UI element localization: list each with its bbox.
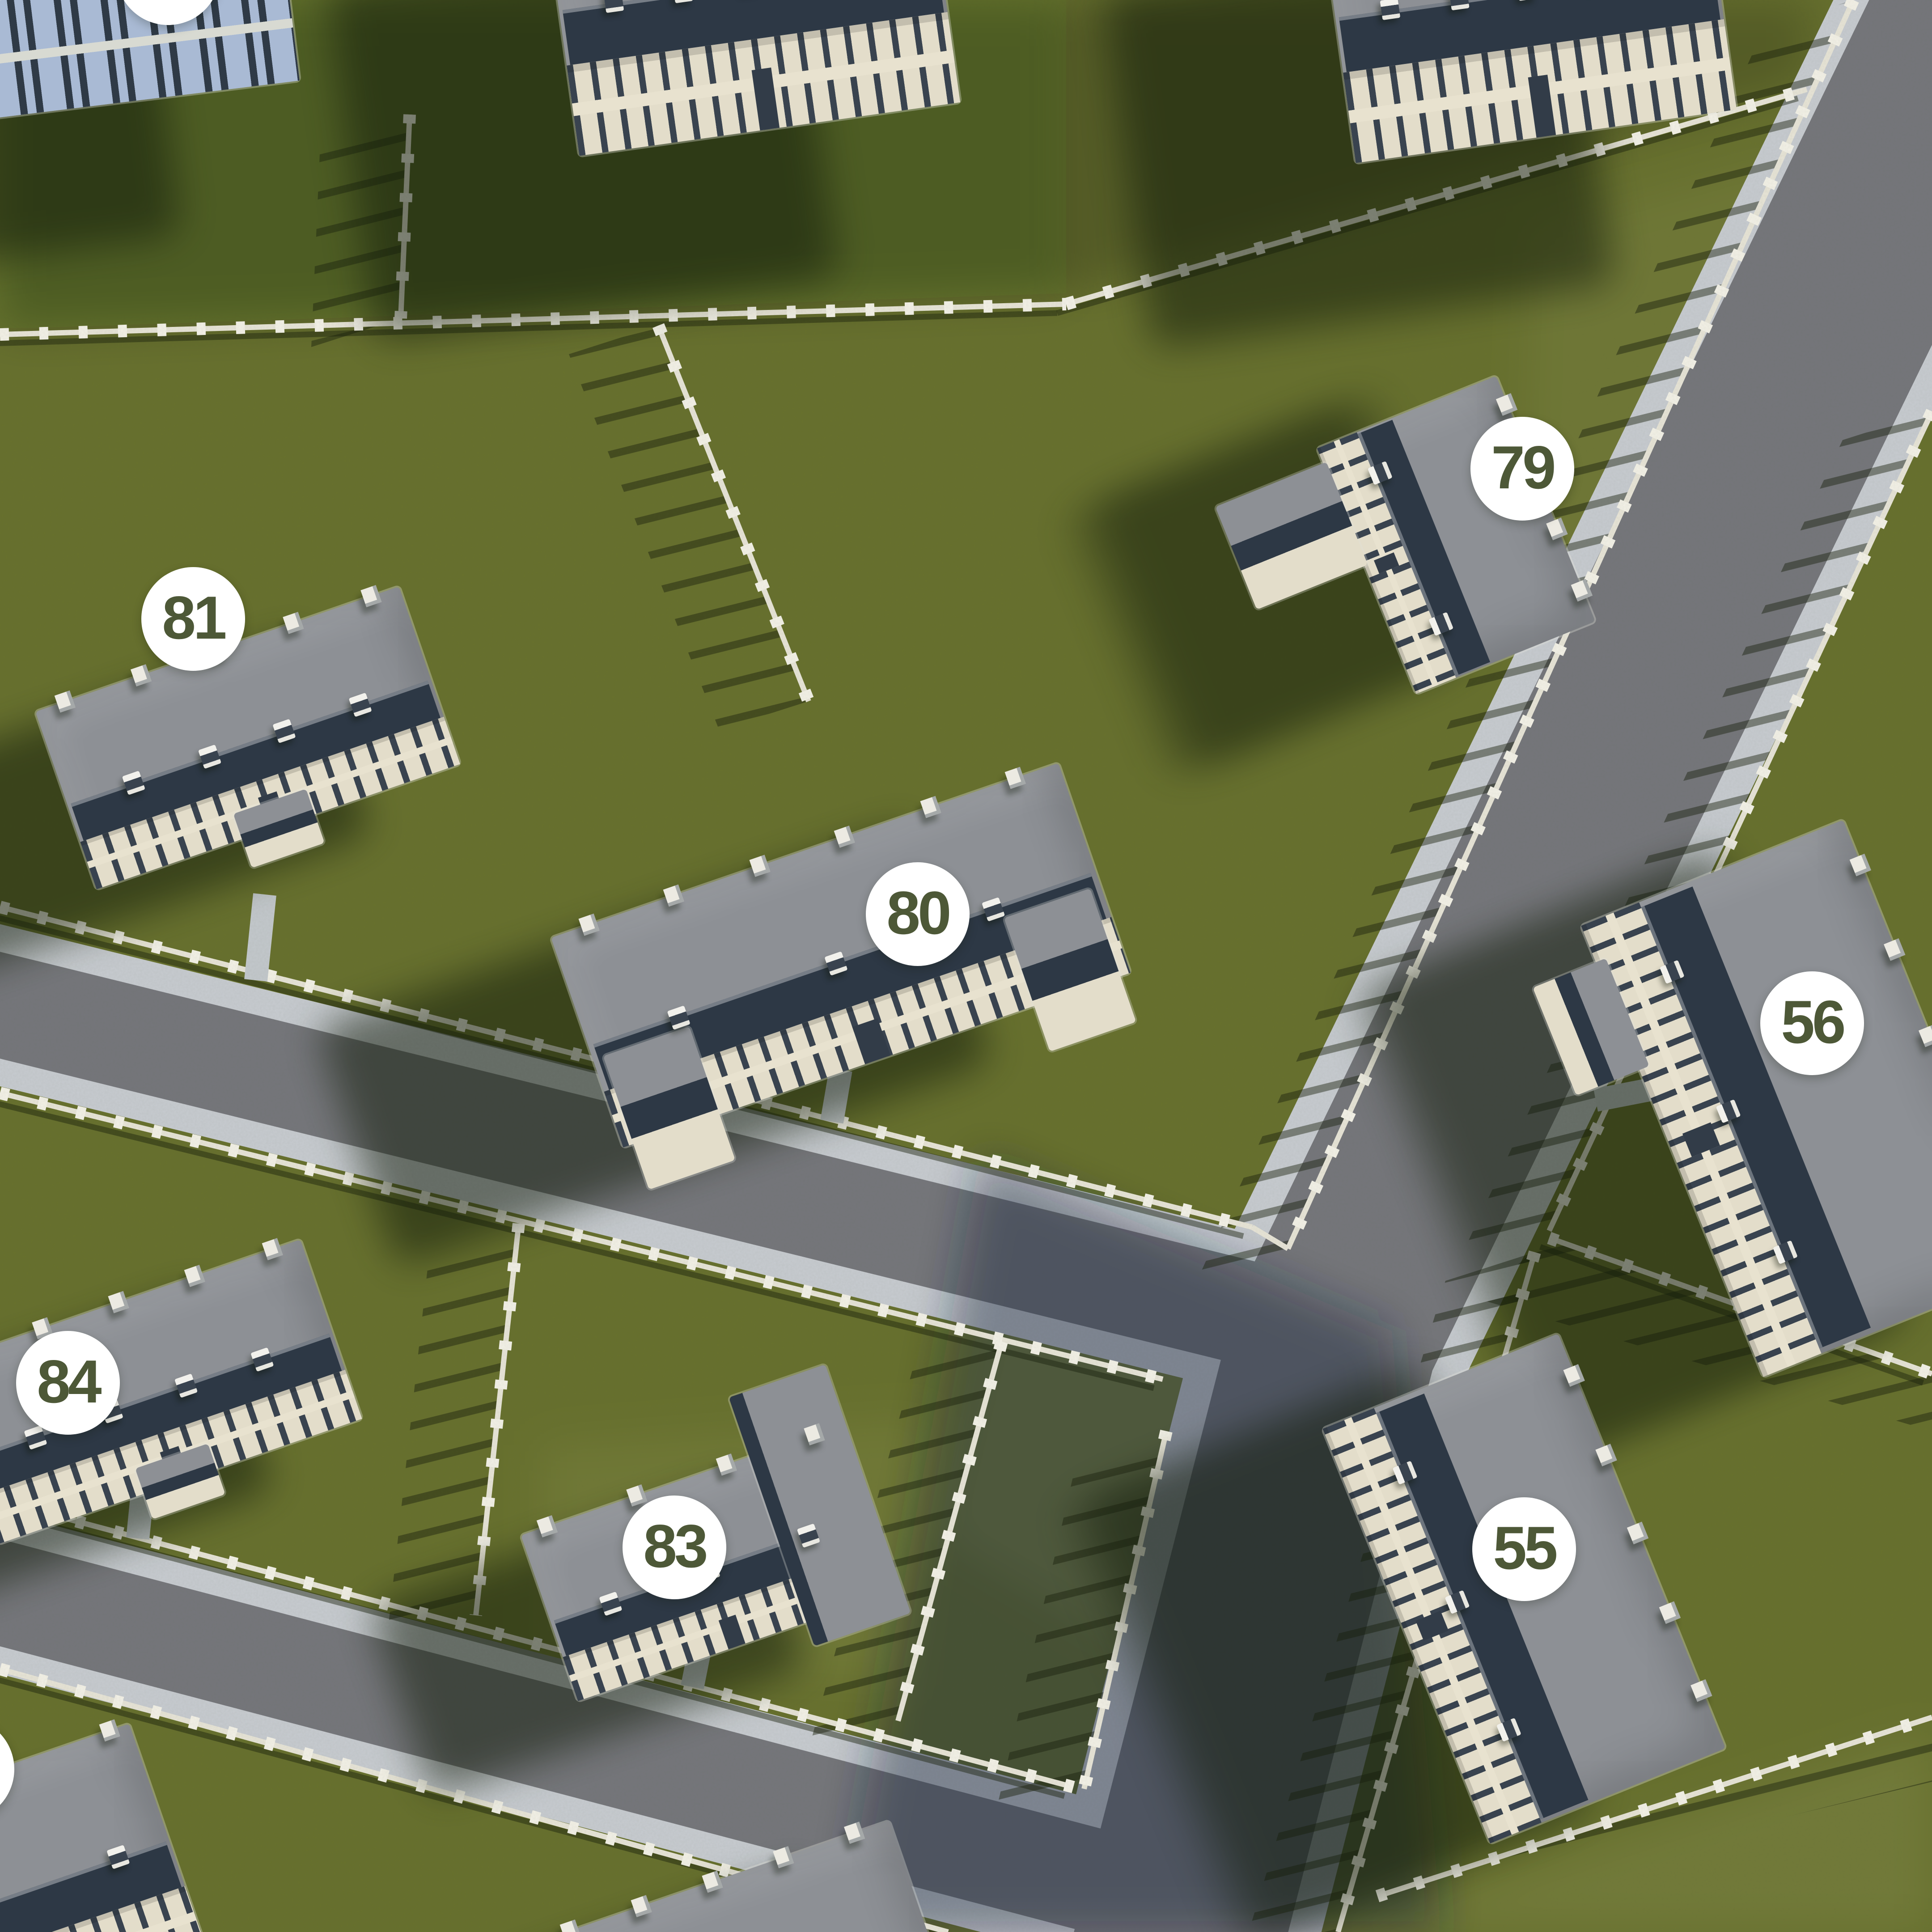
lot-badge-80[interactable]: 80 <box>866 862 970 966</box>
lot-number: 79 <box>1491 438 1553 499</box>
lot-number: 55 <box>1493 1519 1555 1580</box>
lot-number: 81 <box>162 589 224 649</box>
lot-number: 84 <box>37 1352 99 1413</box>
lot-badge-81[interactable]: 81 <box>141 567 245 671</box>
lot-number: 80 <box>886 884 949 945</box>
lot-badge-83[interactable]: 83 <box>623 1496 726 1599</box>
lot-badge-56[interactable]: 56 <box>1760 971 1864 1075</box>
lot-badge-84[interactable]: 84 <box>16 1331 120 1435</box>
map-canvas: 81807956848355 <box>0 0 1932 1932</box>
lot-badge-55[interactable]: 55 <box>1472 1497 1576 1601</box>
lot-number: 56 <box>1781 993 1843 1054</box>
lot-badge-bottom-left[interactable] <box>0 1717 14 1821</box>
lot-badge-79[interactable]: 79 <box>1470 417 1574 521</box>
lot-badge-top-left-blue[interactable] <box>116 0 220 25</box>
lot-number: 83 <box>643 1517 705 1578</box>
lot-badges-layer: 81807956848355 <box>0 0 1932 1932</box>
